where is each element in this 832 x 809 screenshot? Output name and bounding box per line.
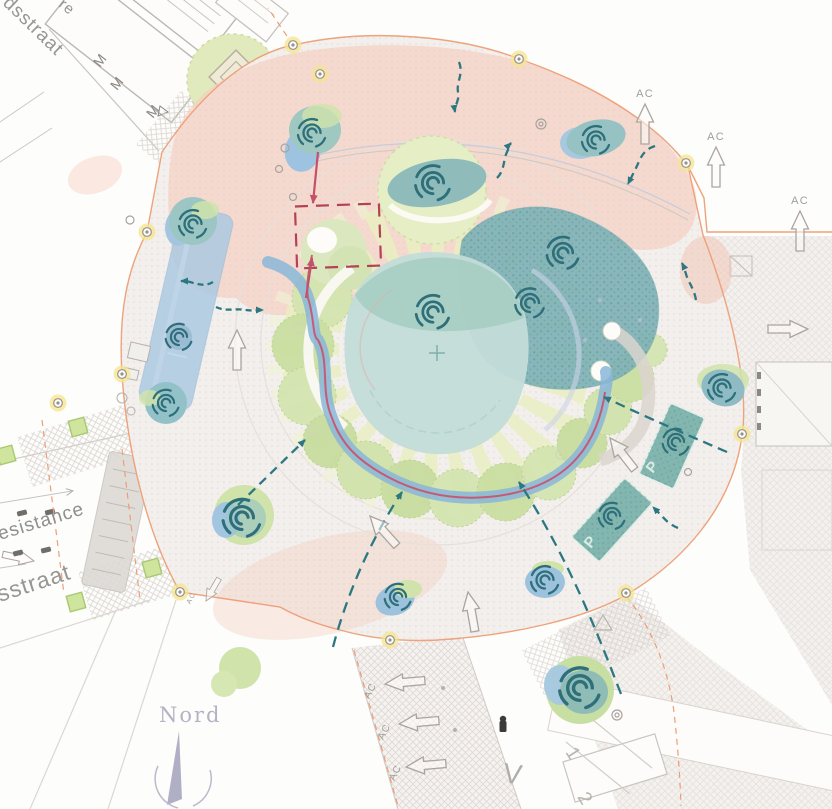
compass-needle-icon	[167, 731, 182, 805]
lamp-icon	[114, 366, 131, 383]
site-plan: M M M	[0, 0, 832, 809]
v-label: V	[501, 757, 524, 790]
compass-arc	[193, 770, 211, 806]
lamp-icon	[172, 584, 189, 601]
ac-arrow	[708, 147, 725, 187]
planter-square	[66, 592, 86, 612]
lamp-icon	[618, 585, 635, 602]
ac-label: AC	[636, 88, 654, 100]
perimeter-line	[688, 166, 832, 232]
lamp-icon	[312, 66, 329, 83]
street-edge	[0, 92, 44, 122]
ac-label: AC	[707, 131, 725, 143]
planter-square	[0, 445, 16, 465]
lane-line	[0, 564, 26, 568]
street-edge	[30, 612, 115, 809]
lane-arrow	[0, 491, 72, 503]
lamp-icon	[50, 395, 67, 412]
site-plan-canvas: M M M	[0, 0, 832, 809]
planter-square	[68, 417, 88, 437]
street-edge	[0, 128, 52, 162]
tree-canopy	[211, 647, 261, 697]
street-name-resistance: esistance	[0, 499, 87, 545]
street-name-straat: sstraat	[0, 559, 74, 607]
lamp-icon	[678, 155, 695, 172]
car-icon	[41, 546, 52, 553]
lamp-icon	[734, 426, 751, 443]
ac-label: AC	[791, 195, 809, 207]
compass-north-label: Nord	[159, 703, 222, 727]
planter-square	[142, 558, 162, 578]
lamp-icon	[285, 37, 302, 54]
central-pond	[344, 252, 528, 454]
lamp-icon	[511, 51, 528, 68]
hydrant-icon	[500, 716, 507, 732]
lamp-icon	[139, 224, 156, 241]
lamp-icon	[382, 632, 399, 649]
pink-zone	[63, 149, 128, 202]
compass: Nord	[155, 703, 221, 808]
